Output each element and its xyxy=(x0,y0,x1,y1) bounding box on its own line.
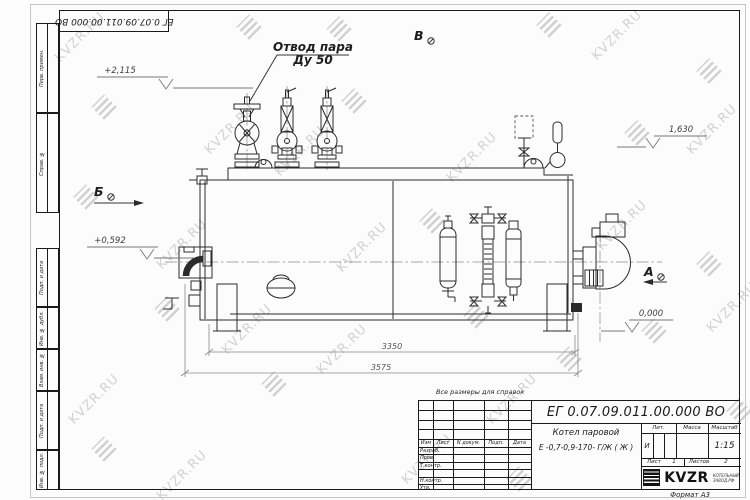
margin-label: Взам. инв. № xyxy=(37,350,47,390)
margin-label: Перв. примен. xyxy=(37,24,47,112)
mass-header: Масса xyxy=(676,423,708,433)
drawing-sheet: KVZR.RUKVZR.RUKVZR.RUKVZR.RUKVZR.RUKVZR.… xyxy=(0,0,750,500)
col-header-list: Лист xyxy=(433,439,453,447)
col-header-izm: Изм xyxy=(419,439,433,447)
margin-block-perv-primen: Перв. примен. xyxy=(36,23,59,113)
kvzr-logo-text: KVZR xyxy=(664,470,709,486)
format-label: Формат А3 xyxy=(640,491,740,499)
reference-note: Все размеры для справок xyxy=(436,388,524,396)
title-block: Изм Лист N докум. Подп. Дата Разраб. Про… xyxy=(418,400,740,490)
margin-block-sprav-no: Справ. № xyxy=(36,113,59,213)
margin-block-inv-dubl: Инв. № дубл. xyxy=(36,307,59,349)
margin-label: Инв. № подл. xyxy=(37,451,47,489)
col-header-data: Дата xyxy=(508,439,531,447)
sheet-number: 1 xyxy=(667,458,681,466)
margin-block-podp-data-1: Подп. и дата xyxy=(36,248,59,307)
row-utv: Утв. xyxy=(420,484,453,491)
corner-stamp-doc-number: ЕГ 0.07.09.011.00.000 ВО xyxy=(55,16,173,26)
margin-block-vzam-inv: Взам. инв. № xyxy=(36,349,59,391)
row-tkontr: Т.контр. xyxy=(420,462,453,469)
kvzr-logo-icon xyxy=(643,469,660,486)
lit-value: И xyxy=(641,433,653,458)
product-name-line2: Е -0,7-0,9-170- Г/Ж ( Ж ) xyxy=(531,440,641,454)
kvzr-logo-subtext: КОТЕЛЬНЫЙ ЗАВОД.РФ xyxy=(713,473,739,483)
col-header-ndoc: N докум. xyxy=(453,439,484,447)
kvzr-logo-subtext-line2: ЗАВОД.РФ xyxy=(713,478,739,483)
scale-value: 1:15 xyxy=(708,433,741,458)
corner-stamp: ЕГ 0.07.09.011.00.000 ВО xyxy=(59,10,169,32)
row-prov: Пров. xyxy=(420,454,453,462)
margin-label: Подп. и дата xyxy=(37,392,47,449)
sheets-label: Листов xyxy=(685,458,713,466)
manufacturer-logo: KVZR КОТЕЛЬНЫЙ ЗАВОД.РФ xyxy=(641,466,741,489)
lit-header: Лит. xyxy=(641,423,676,433)
row-razrab: Разраб. xyxy=(420,447,453,454)
margin-block-inv-podl: Инв. № подл. xyxy=(36,450,59,490)
col-header-podp: Подп. xyxy=(484,439,508,447)
sheet-label: Лист xyxy=(643,458,665,466)
margin-label: Подп. и дата xyxy=(37,249,47,306)
sheets-total: 2 xyxy=(717,458,735,466)
scale-header: Масштаб xyxy=(708,423,741,433)
margin-label: Справ. № xyxy=(37,114,47,212)
margin-label: Инв. № дубл. xyxy=(37,308,47,348)
title-block-doc-number: ЕГ 0.07.09.011.00.000 ВО xyxy=(531,401,741,423)
row-nkontr: Н.контр. xyxy=(420,477,453,484)
margin-block-podp-data-2: Подп. и дата xyxy=(36,391,59,450)
product-name-line1: Котел паровой xyxy=(531,425,641,441)
